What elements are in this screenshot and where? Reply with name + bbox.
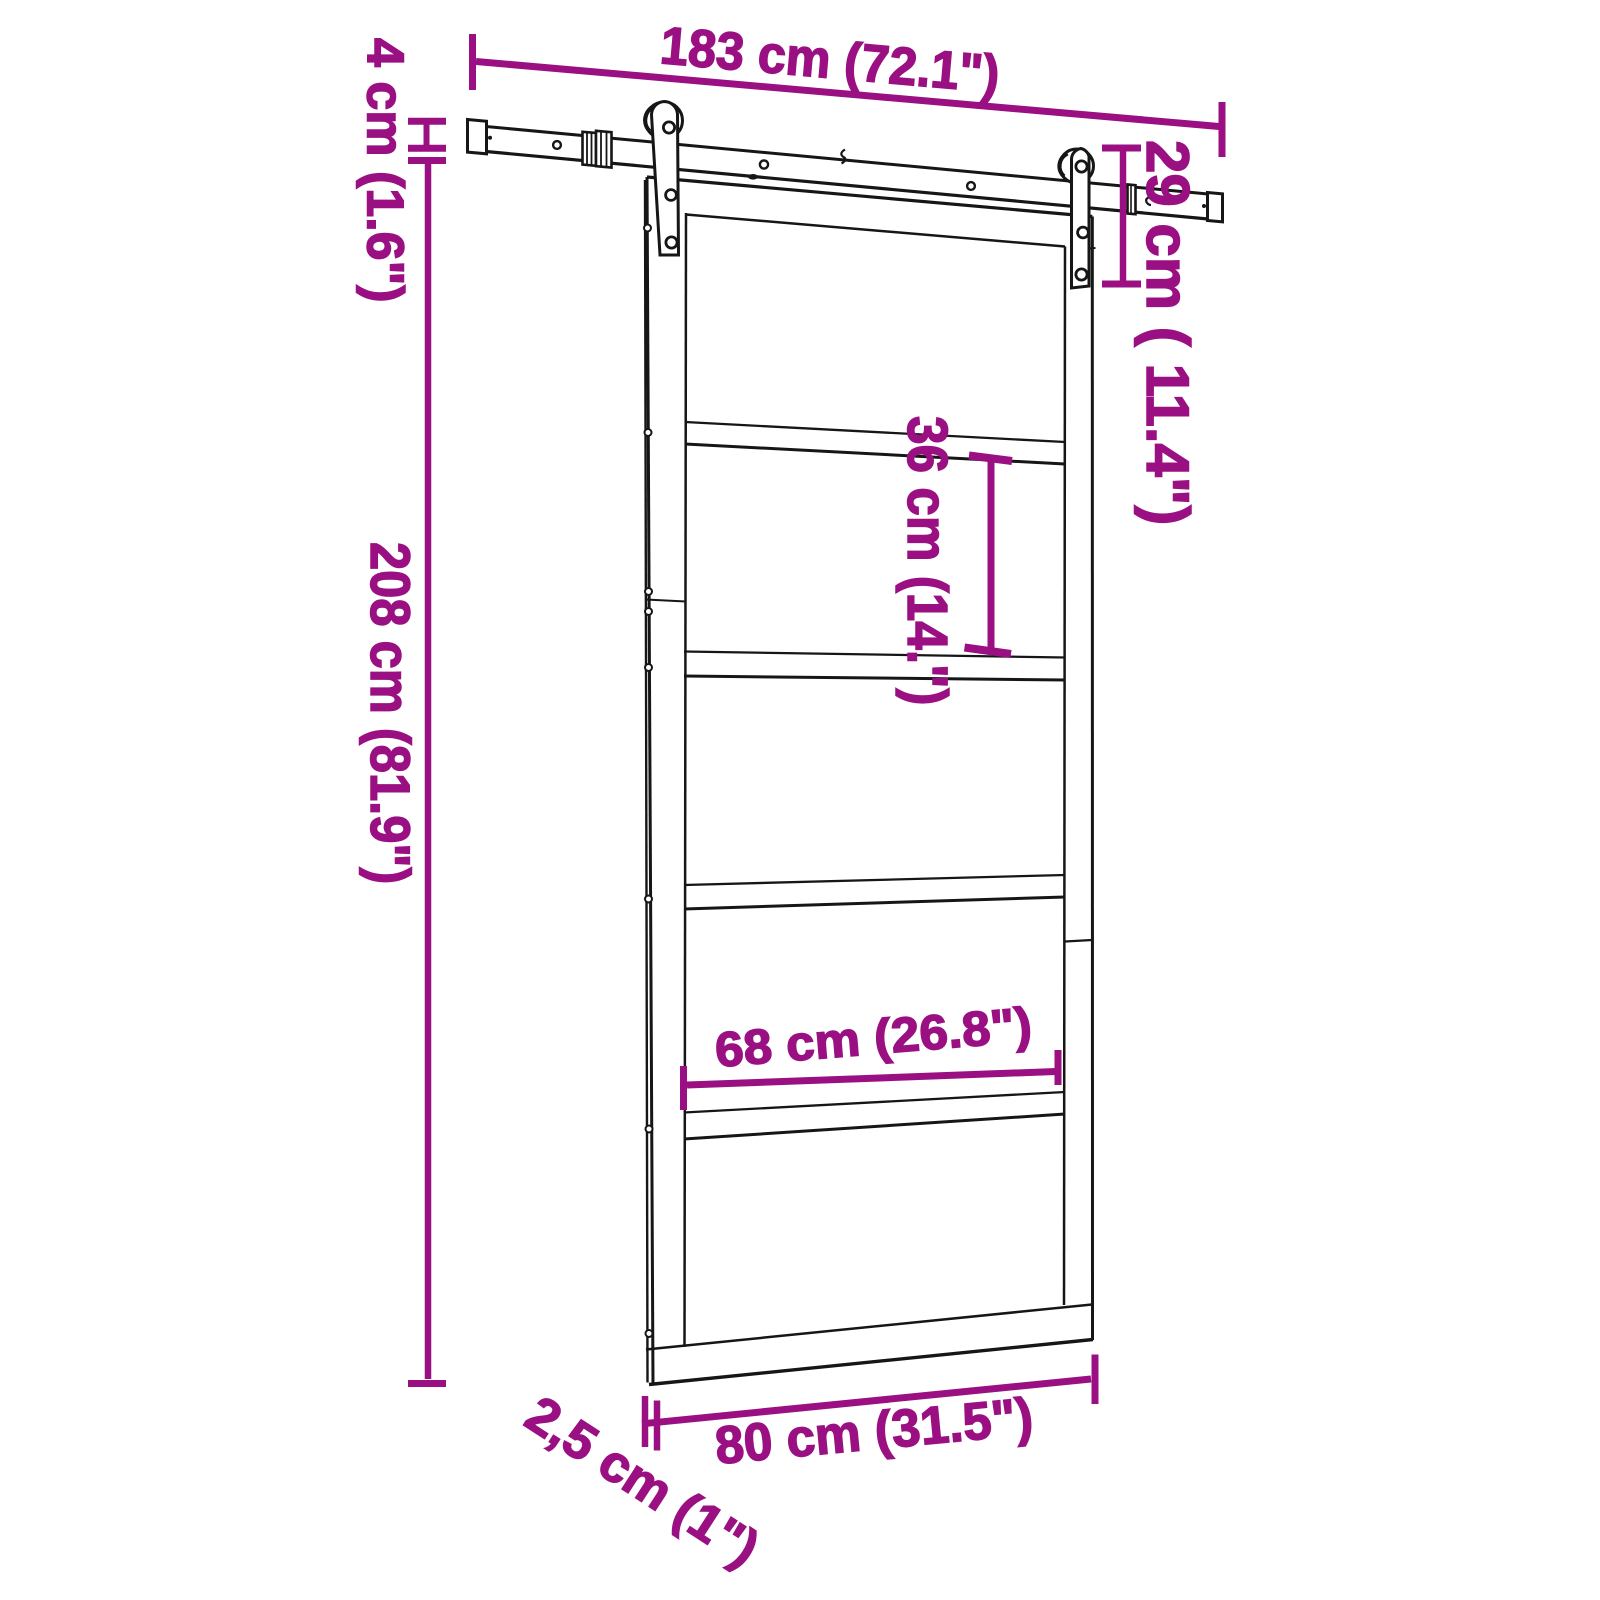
svg-text:36 cm (14."): 36 cm (14.") — [895, 416, 958, 705]
svg-text:4 cm (1.6"): 4 cm (1.6") — [356, 38, 414, 303]
svg-text:29 cm ( 11.4"): 29 cm ( 11.4") — [1134, 140, 1201, 525]
svg-text:208 cm (81.9"): 208 cm (81.9") — [358, 542, 420, 884]
